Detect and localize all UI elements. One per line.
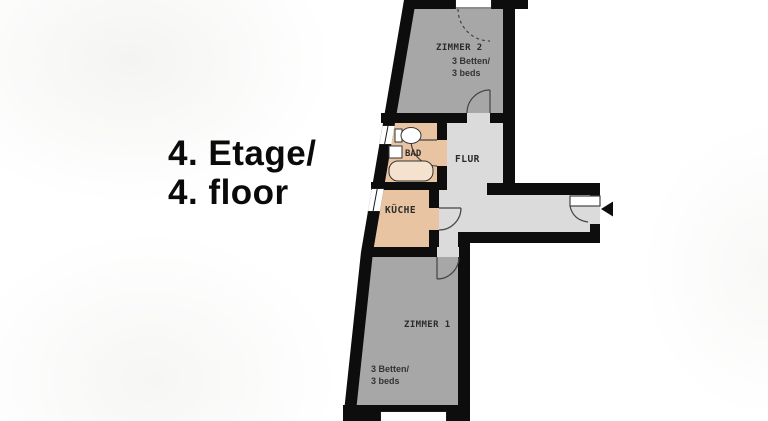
sink <box>389 146 402 158</box>
floorplan-page: 4. Etage/ 4. floor <box>0 0 768 421</box>
zimmer1-label: ZIMMER 1 <box>404 320 451 330</box>
opening-zimmer1-door <box>437 247 459 257</box>
kueche-label: KÜCHE <box>385 205 416 216</box>
zimmer2-beds-en: 3 beds <box>452 68 481 78</box>
wall-corridor-bottom <box>470 232 600 243</box>
toilet-bowl <box>401 128 421 144</box>
zimmer1-beds-de: 3 Betten/ <box>371 364 410 374</box>
zimmer2-beds-de: 3 Betten/ <box>452 56 491 66</box>
opening-kueche-door <box>429 208 439 230</box>
window-top <box>455 0 492 9</box>
bathtub <box>389 161 433 181</box>
opening-zimmer2-door <box>467 113 490 123</box>
flur-label: FLUR <box>455 154 480 165</box>
zimmer1-beds-en: 3 beds <box>371 376 400 386</box>
floor-plan-drawing: ZIMMER 2 3 Betten/ 3 beds BAD FLUR KÜCHE… <box>0 0 768 421</box>
opening-bad-door <box>437 140 447 166</box>
wall-zimmer1-right <box>458 247 470 421</box>
entrance-door-leaf <box>570 196 600 206</box>
wall-zimmer2-right <box>503 0 515 195</box>
bad-label: BAD <box>405 149 422 159</box>
zimmer2-label: ZIMMER 2 <box>436 43 483 53</box>
window-zimmer1 <box>380 411 447 421</box>
entrance-arrow-icon <box>601 202 613 217</box>
wall-zimmer1-top <box>363 247 437 257</box>
wall-corridor-top <box>487 183 600 195</box>
wall-zimmer2-bottom <box>381 113 515 123</box>
